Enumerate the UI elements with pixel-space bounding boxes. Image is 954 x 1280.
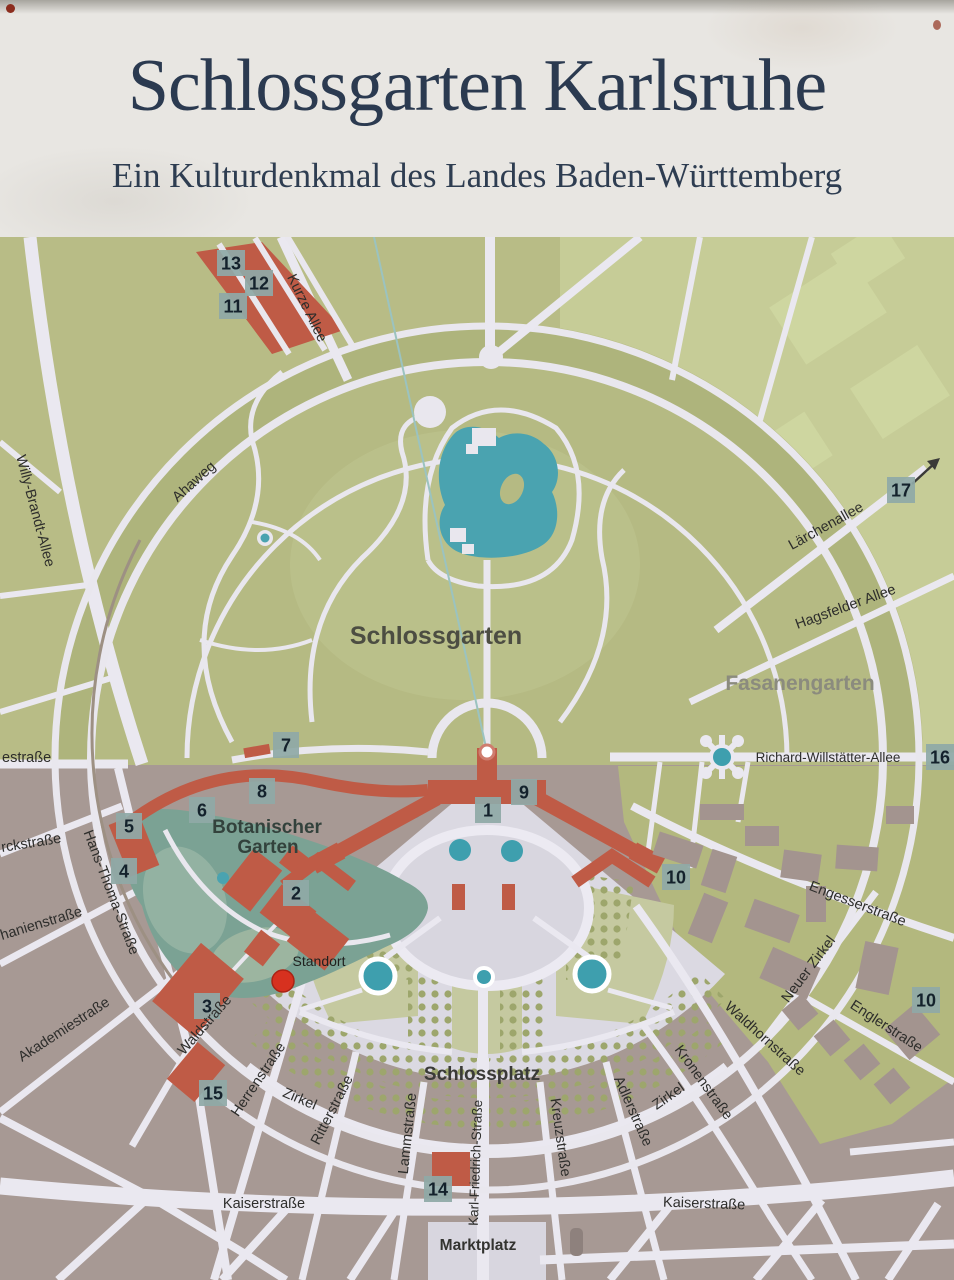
marker-label: 12 xyxy=(249,274,269,294)
pond xyxy=(261,534,270,543)
label-schlossplatz: Schlossplatz xyxy=(424,1064,540,1085)
map-marker-5: 5 xyxy=(116,813,142,839)
marker-label: 6 xyxy=(197,801,207,821)
map-marker-11: 11 xyxy=(219,293,247,319)
marker-label: 7 xyxy=(281,736,291,756)
map-marker-14: 14 xyxy=(424,1176,452,1202)
marker-label: 11 xyxy=(223,297,242,317)
map-marker-16: 16 xyxy=(926,744,954,770)
sign-header: Schlossgarten Karlsruhe Ein Kulturdenkma… xyxy=(0,0,954,237)
label-schlossgarten: Schlossgarten xyxy=(350,622,522,650)
label-fasanengarten: Fasanengarten xyxy=(725,672,874,695)
marker-label: 5 xyxy=(124,817,134,837)
marker-label: 2 xyxy=(291,884,301,904)
marker-label: 4 xyxy=(119,862,129,882)
label-botanischer-garten: Botanischer xyxy=(212,817,322,838)
map-marker-13: 13 xyxy=(217,250,245,276)
map-marker-15: 15 xyxy=(199,1080,227,1106)
current-location-marker xyxy=(272,970,294,992)
marker-label: 17 xyxy=(891,481,911,501)
marker-label: 8 xyxy=(257,782,267,802)
map-marker-1: 1 xyxy=(475,797,501,823)
lake xyxy=(439,427,558,558)
photo-mark xyxy=(6,4,15,13)
label-moltkestrasse: estraße xyxy=(2,750,51,766)
map-marker-7: 7 xyxy=(273,732,299,758)
marker-label: 15 xyxy=(203,1084,223,1104)
label-kaiserstrasse-west: Kaiserstraße xyxy=(223,1196,305,1212)
marker-label: 9 xyxy=(519,783,529,803)
marker-label: 16 xyxy=(930,748,950,768)
map-marker-12: 12 xyxy=(245,270,273,296)
map-marker-8: 8 xyxy=(249,778,275,804)
map-marker-10a: 10 xyxy=(662,864,690,890)
map-marker-6: 6 xyxy=(189,797,215,823)
marker-label: 10 xyxy=(916,991,936,1011)
marker-label: 13 xyxy=(221,254,241,274)
map-marker-9: 9 xyxy=(511,779,537,805)
map-marker-17: 17 xyxy=(887,477,915,503)
map-marker-2: 2 xyxy=(283,880,309,906)
map-marker-10b: 10 xyxy=(912,987,940,1013)
sign-title: Schlossgarten Karlsruhe xyxy=(0,44,954,129)
sign-subtitle: Ein Kulturdenkmal des Landes Baden-Württ… xyxy=(0,156,954,196)
photo-mark xyxy=(933,20,941,30)
label-kaiserstrasse-east: Kaiserstraße xyxy=(663,1195,746,1214)
marker-label: 1 xyxy=(483,801,493,821)
palace-tower xyxy=(480,745,494,759)
label-richard-willstaetter-allee: Richard-Willstätter-Allee xyxy=(756,750,901,765)
star-fountain xyxy=(700,735,744,779)
sign-photo: 1 2 3 4 5 6 7 8 9 10 10 11 12 13 14 15 1… xyxy=(0,0,954,1280)
label-botanischer-garten: Garten xyxy=(237,837,298,858)
marker-label: 10 xyxy=(666,868,686,888)
park-roundel xyxy=(414,396,446,428)
label-standort: Standort xyxy=(293,953,346,969)
label-marktplatz: Marktplatz xyxy=(440,1237,517,1254)
marker-label: 14 xyxy=(428,1180,448,1200)
